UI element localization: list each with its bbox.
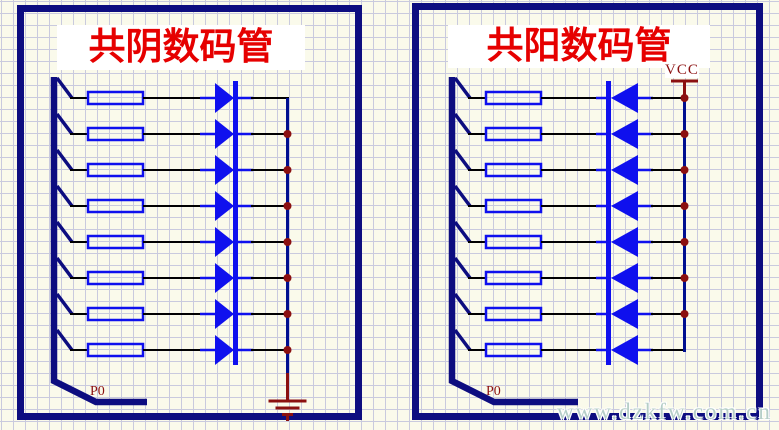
junction-dot — [681, 94, 689, 102]
junction-dot — [681, 238, 689, 246]
schematic-canvas: 共阴数码管 共阳数码管 VCC P0 P0 www.dzkfw.com.cn — [0, 0, 779, 430]
junction-dot — [284, 166, 292, 174]
segment-row — [57, 150, 289, 185]
left-panel-title: 共阴数码管 — [57, 25, 305, 70]
junction-dot — [284, 274, 292, 282]
junction-dot — [681, 166, 689, 174]
segment-row — [57, 294, 289, 329]
junction-dot — [681, 274, 689, 282]
junction-dot — [681, 310, 689, 318]
segment-row — [455, 78, 686, 113]
segment-row — [455, 186, 686, 221]
segment-row — [455, 150, 686, 185]
right-bus-label: P0 — [486, 385, 501, 399]
junction-dot — [284, 238, 292, 246]
junction-dot — [284, 346, 292, 354]
junction-dot — [681, 130, 689, 138]
right-panel-circuit — [455, 78, 698, 365]
segment-row — [57, 258, 289, 293]
segment-row — [57, 186, 289, 221]
junction-dot — [284, 130, 292, 138]
junction-dot — [284, 310, 292, 318]
left-bus-label: P0 — [90, 385, 105, 399]
segment-row — [57, 114, 289, 149]
segment-row — [455, 222, 686, 257]
left-panel-circuit — [57, 78, 307, 421]
segment-row — [57, 330, 289, 365]
junction-dot — [681, 202, 689, 210]
segment-row — [455, 258, 686, 293]
segment-row — [455, 330, 686, 365]
common-cathode-bar — [233, 81, 238, 365]
junction-dot — [284, 202, 292, 210]
right-bus-p0 — [452, 77, 578, 402]
segment-row — [455, 294, 686, 329]
segment-row — [455, 114, 686, 149]
segment-row — [57, 78, 289, 113]
right-panel-frame — [416, 7, 760, 417]
watermark-text: www.dzkfw.com.cn — [557, 400, 772, 424]
vcc-label: VCC — [665, 62, 699, 78]
segment-row — [57, 222, 289, 257]
common-cathode-bar — [606, 81, 611, 365]
